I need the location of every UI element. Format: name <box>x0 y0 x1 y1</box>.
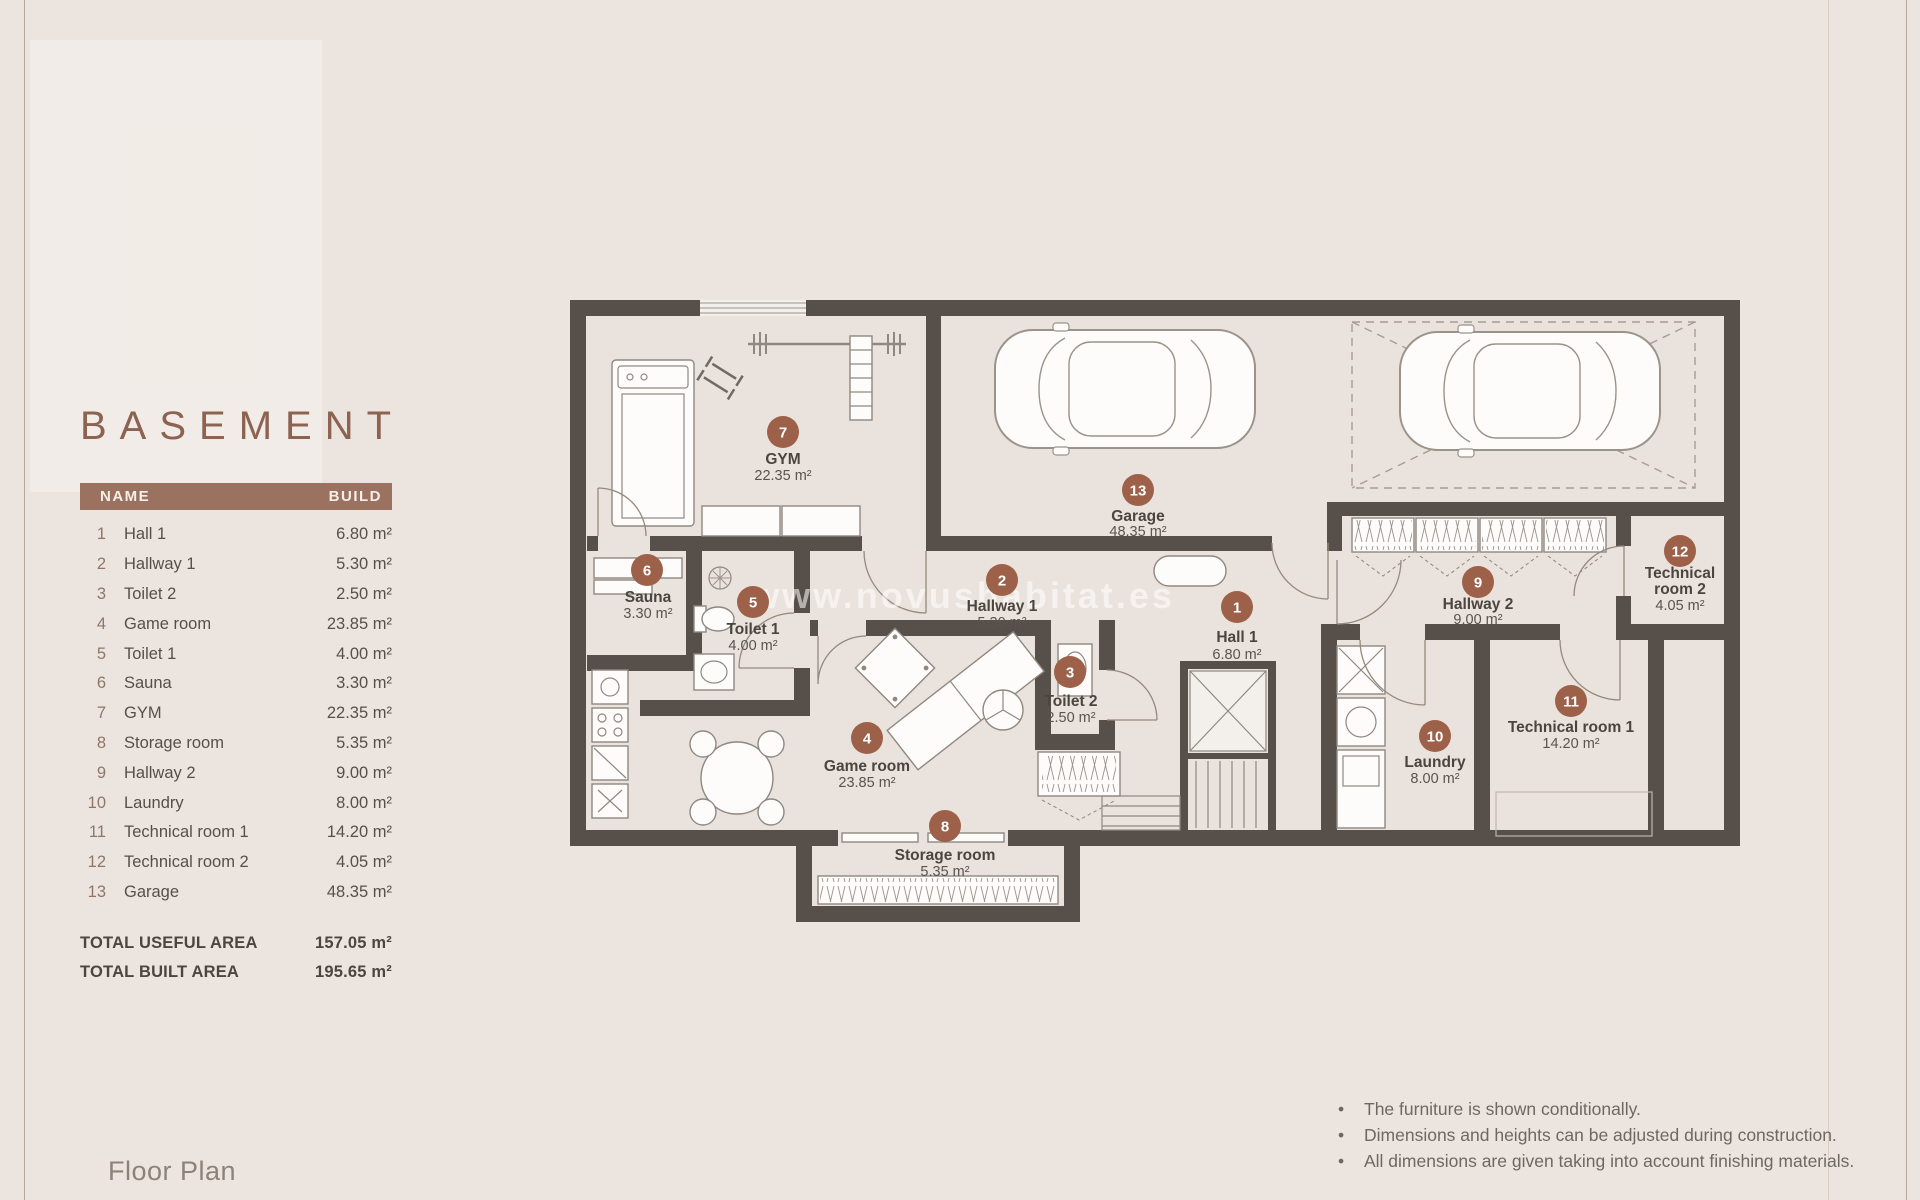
svg-text:14.20 m²: 14.20 m² <box>1542 736 1599 752</box>
svg-text:5.35 m²: 5.35 m² <box>920 864 969 880</box>
inner-border-line <box>1828 0 1829 1200</box>
svg-text:Storage room: Storage room <box>895 847 996 864</box>
window <box>700 300 806 316</box>
svg-text:Toilet 2: Toilet 2 <box>1044 693 1097 710</box>
svg-text:2: 2 <box>998 573 1006 590</box>
svg-text:23.85 m²: 23.85 m² <box>838 775 895 791</box>
table-header-name: NAME <box>100 488 150 505</box>
car <box>1400 325 1660 457</box>
shower-head <box>709 567 731 589</box>
note-item: •All dimensions are given taking into ac… <box>1338 1152 1898 1170</box>
svg-text:Garage: Garage <box>1111 508 1165 525</box>
svg-text:5.30 m²: 5.30 m² <box>977 615 1026 631</box>
table-row: 1Hall 16.80 m² <box>80 520 392 550</box>
note-item: •Dimensions and heights can be adjusted … <box>1338 1126 1898 1144</box>
total-built-area: TOTAL BUILT AREA 195.65 m² <box>80 958 392 987</box>
svg-text:Technical room 1: Technical room 1 <box>1508 719 1635 736</box>
svg-text:1: 1 <box>1233 600 1241 617</box>
svg-text:Hallway 1: Hallway 1 <box>967 598 1038 615</box>
svg-text:5: 5 <box>749 595 757 612</box>
table-header-build: BUILD <box>329 488 382 505</box>
svg-text:Sauna: Sauna <box>625 589 672 606</box>
svg-text:4.05 m²: 4.05 m² <box>1655 598 1704 614</box>
svg-text:9: 9 <box>1474 575 1482 592</box>
svg-text:Hallway 2: Hallway 2 <box>1443 596 1514 613</box>
bullet-icon: • <box>1338 1126 1364 1144</box>
totals: TOTAL USEFUL AREA 157.05 m² TOTAL BUILT … <box>80 929 392 987</box>
floor-plan-label: Floor Plan <box>108 1156 236 1187</box>
bullet-icon: • <box>1338 1100 1364 1118</box>
svg-text:2.50 m²: 2.50 m² <box>1046 710 1095 726</box>
svg-text:10: 10 <box>1427 729 1444 746</box>
notes: •The furniture is shown conditionally. •… <box>1338 1100 1898 1178</box>
dining-table <box>690 731 784 825</box>
svg-text:GYM: GYM <box>765 451 800 468</box>
svg-text:8: 8 <box>941 819 949 836</box>
note-item: •The furniture is shown conditionally. <box>1338 1100 1898 1118</box>
left-border-line <box>24 0 25 1200</box>
table-row: 8Storage room5.35 m² <box>80 729 392 759</box>
table-row: 9Hallway 29.00 m² <box>80 758 392 788</box>
svg-text:7: 7 <box>779 425 787 442</box>
svg-text:Hall 1: Hall 1 <box>1216 629 1258 646</box>
table-row: 12Technical room 24.05 m² <box>80 848 392 878</box>
svg-text:11: 11 <box>1563 694 1579 711</box>
table-row: 3Toilet 22.50 m² <box>80 580 392 610</box>
svg-text:48.35 m²: 48.35 m² <box>1109 524 1166 540</box>
area-table: 1Hall 16.80 m² 2Hallway 15.30 m² 3Toilet… <box>80 520 392 907</box>
table-row: 6Sauna3.30 m² <box>80 669 392 699</box>
car <box>995 323 1255 455</box>
svg-text:3.30 m²: 3.30 m² <box>623 606 672 622</box>
svg-text:8.00 m²: 8.00 m² <box>1410 771 1459 787</box>
svg-text:13: 13 <box>1130 483 1147 500</box>
svg-text:4: 4 <box>863 731 872 748</box>
table-header: NAME BUILD <box>80 483 392 510</box>
sink <box>694 654 734 690</box>
table-row: 10Laundry8.00 m² <box>80 788 392 818</box>
table-row: 13Garage48.35 m² <box>80 878 392 908</box>
floor-plan-drawing: www.novushabitat.es 1 Hall 1 6.80 m² 2 H… <box>560 290 1750 940</box>
svg-text:6: 6 <box>643 563 651 580</box>
laundry-units <box>1337 646 1385 828</box>
svg-text:Technical: Technical <box>1645 565 1715 582</box>
page-title: BASEMENT <box>80 404 392 449</box>
treadmill <box>612 360 694 526</box>
table-row: 4Game room23.85 m² <box>80 609 392 639</box>
wall-bars <box>850 336 872 420</box>
svg-text:4.00 m²: 4.00 m² <box>728 638 777 654</box>
svg-text:3: 3 <box>1066 665 1074 682</box>
ball <box>983 690 1023 730</box>
svg-text:22.35 m²: 22.35 m² <box>754 468 811 484</box>
table-row: 5Toilet 14.00 m² <box>80 639 392 669</box>
svg-text:Laundry: Laundry <box>1404 754 1466 771</box>
legend-sidebar: BASEMENT NAME BUILD 1Hall 16.80 m² 2Hall… <box>80 404 392 987</box>
table-row: 7GYM22.35 m² <box>80 699 392 729</box>
svg-text:6.80 m²: 6.80 m² <box>1212 647 1261 663</box>
total-useful-area: TOTAL USEFUL AREA 157.05 m² <box>80 929 392 958</box>
svg-text:room 2: room 2 <box>1654 581 1706 598</box>
right-border-line <box>1906 0 1907 1200</box>
table-row: 11Technical room 114.20 m² <box>80 818 392 848</box>
svg-text:9.00 m²: 9.00 m² <box>1453 612 1502 628</box>
svg-text:Toilet 1: Toilet 1 <box>726 621 779 638</box>
table-row: 2Hallway 15.30 m² <box>80 550 392 580</box>
watermark: www.novushabitat.es <box>750 575 1175 616</box>
bullet-icon: • <box>1338 1152 1364 1170</box>
svg-text:Game room: Game room <box>824 758 910 775</box>
svg-text:12: 12 <box>1672 544 1689 561</box>
